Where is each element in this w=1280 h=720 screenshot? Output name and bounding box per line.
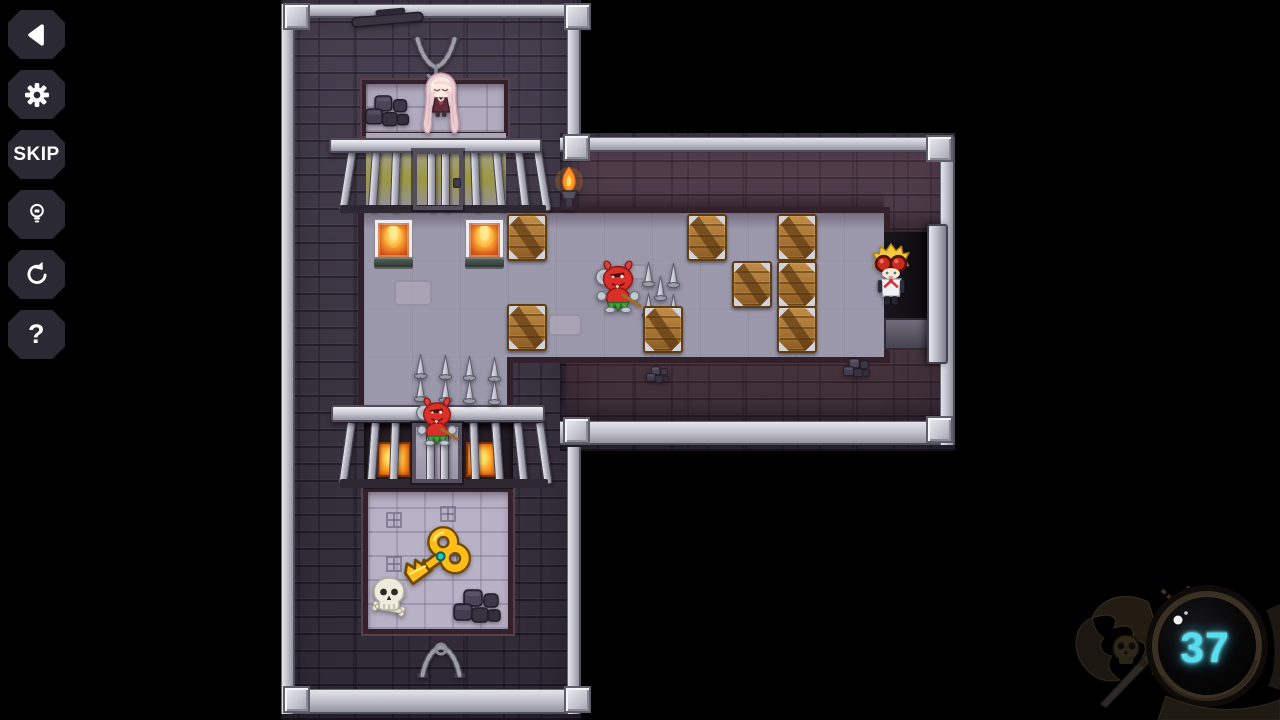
prison-gate-top-bar <box>514 149 530 212</box>
wall-torch <box>554 165 584 217</box>
fallen-beam-top-wall <box>350 6 426 30</box>
floor-grate <box>386 556 402 572</box>
prison-gate-top-latch <box>453 178 461 188</box>
rubble-corridor-wall-right <box>832 352 882 380</box>
prison-gate-top-bar <box>533 149 552 212</box>
prison-gate-bottom-bar <box>535 421 553 485</box>
enemy-devil-gate[interactable] <box>414 394 460 446</box>
wooden-crate[interactable] <box>732 261 772 308</box>
prison-gate-top-bar <box>492 150 506 213</box>
prison-gate-top-bar <box>338 149 357 212</box>
wooden-crate[interactable] <box>777 261 817 308</box>
chain-shackle-bottom <box>415 636 467 678</box>
enemy-devil-corridor[interactable] <box>593 258 643 312</box>
wooden-crate[interactable] <box>687 214 727 261</box>
floor-grate <box>386 512 402 528</box>
floor-spike <box>487 379 502 405</box>
wooden-crate[interactable] <box>507 214 547 261</box>
game-screen: SKIP ? <box>0 0 1280 720</box>
rubble-corridor-wall-left <box>638 361 678 385</box>
prison-gate-top-bar <box>390 150 401 212</box>
floor-spike <box>462 378 477 404</box>
prison-gate-bottom-bar <box>338 421 356 485</box>
prison-gate-top-bar <box>368 150 381 212</box>
prisoner-girl[interactable] <box>421 72 461 134</box>
rubble-rocks-cell <box>362 84 414 132</box>
prison-gate-bottom-bar <box>513 422 529 486</box>
prison-gate-top-bar <box>470 150 481 212</box>
fire-plate <box>375 220 412 260</box>
floor-patch <box>394 280 432 306</box>
fire-plate <box>466 220 503 260</box>
move-counter-value: 37 <box>1169 624 1241 672</box>
wooden-crate[interactable] <box>507 304 547 351</box>
wooden-crate[interactable] <box>777 214 817 261</box>
floor-grate <box>440 506 456 522</box>
player-character[interactable] <box>872 243 910 306</box>
golden-key[interactable] <box>402 524 472 594</box>
floor-spike <box>666 262 681 288</box>
floor-patch <box>548 314 582 336</box>
wooden-crate[interactable] <box>643 306 683 353</box>
wooden-crate[interactable] <box>777 306 817 353</box>
